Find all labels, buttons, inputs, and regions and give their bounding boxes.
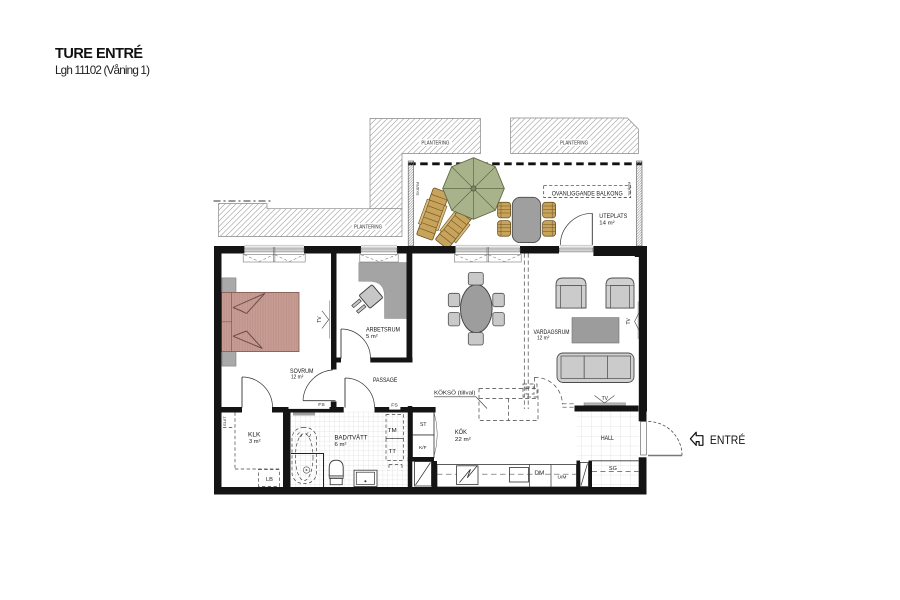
svg-text:LB: LB <box>266 477 273 483</box>
svg-text:TV: TV <box>626 317 632 324</box>
svg-text:TV: TV <box>317 316 323 323</box>
svg-text:KÖKSÖ (tillval): KÖKSÖ (tillval) <box>434 390 476 397</box>
svg-text:ST: ST <box>420 422 427 428</box>
svg-text:PLANTERING: PLANTERING <box>560 141 588 147</box>
svg-text:TURE ENTRÉ: TURE ENTRÉ <box>55 45 146 62</box>
svg-text:PASSAGE: PASSAGE <box>373 377 397 384</box>
svg-text:K/F: K/F <box>419 445 427 451</box>
svg-text:EL/IT: EL/IT <box>222 416 227 426</box>
svg-text:TT: TT <box>389 449 397 455</box>
svg-text:12 m²: 12 m² <box>291 375 303 381</box>
svg-text:TV: TV <box>602 396 609 402</box>
svg-text:HALL: HALL <box>601 435 614 442</box>
svg-text:PLANTERING: PLANTERING <box>354 224 382 230</box>
svg-text:5 m²: 5 m² <box>366 334 378 340</box>
svg-text:14 m²: 14 m² <box>599 221 614 227</box>
svg-text:6 m²: 6 m² <box>335 442 347 448</box>
svg-text:12 m²: 12 m² <box>537 335 549 341</box>
svg-text:DM: DM <box>534 470 544 476</box>
svg-text:TM: TM <box>388 428 397 434</box>
svg-text:22 m²: 22 m² <box>455 437 471 443</box>
svg-text:Lgh 11102 (Våning 1): Lgh 11102 (Våning 1) <box>55 64 150 77</box>
svg-text:3 m²: 3 m² <box>249 439 261 445</box>
svg-text:ENTRÉ: ENTRÉ <box>710 433 746 447</box>
svg-text:KLK: KLK <box>248 431 261 438</box>
svg-text:KÖK: KÖK <box>455 428 468 436</box>
svg-text:U/M: U/M <box>558 475 567 481</box>
svg-text:OVANLIGGANDE BALKONG: OVANLIGGANDE BALKONG <box>552 191 623 197</box>
svg-text:FS: FS <box>391 402 398 408</box>
svg-text:ARBETSRUM: ARBETSRUM <box>366 326 400 333</box>
svg-text:SG: SG <box>609 466 617 472</box>
svg-text:SKÄRM: SKÄRM <box>415 182 420 196</box>
svg-text:BAD/TVÄTT: BAD/TVÄTT <box>335 434 368 441</box>
svg-text:UTEPLATS: UTEPLATS <box>599 214 627 220</box>
svg-text:PLANTERING: PLANTERING <box>421 141 449 147</box>
svg-text:FS: FS <box>318 402 325 408</box>
